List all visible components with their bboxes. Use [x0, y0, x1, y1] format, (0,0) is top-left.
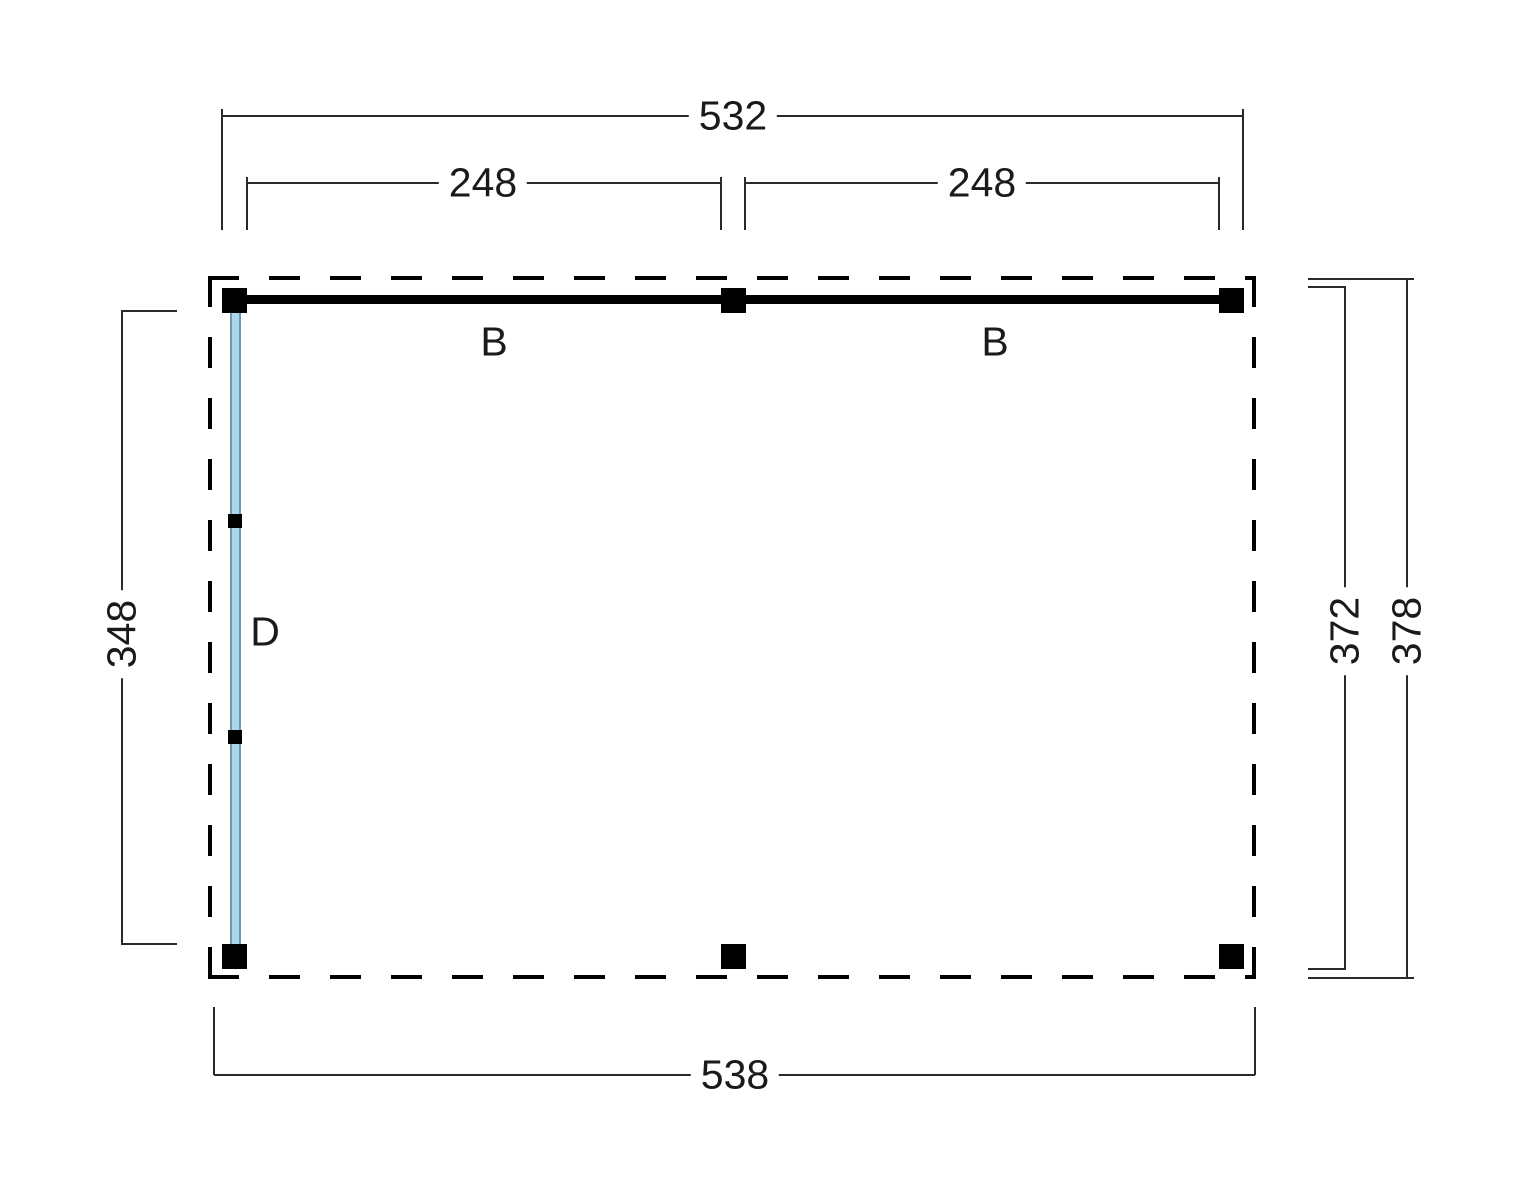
roof-outline-left — [208, 276, 212, 979]
dim-348-label: 348 — [102, 590, 143, 678]
dim-248b-ext-left — [744, 177, 746, 230]
post-bottom-left — [222, 944, 247, 969]
dim-532-label: 532 — [689, 96, 777, 137]
dim-538-ext-left — [213, 1007, 215, 1075]
dim-348-tick-bottom — [121, 943, 177, 945]
roof-outline-right — [1252, 276, 1256, 979]
dim-248a-label: 248 — [439, 163, 527, 204]
roof-outline-top — [208, 276, 1256, 280]
wall-d — [230, 313, 241, 945]
floorplan-canvas: 532 248 248 538 348 372 378 B B D — [0, 0, 1530, 1188]
wall-post-upper — [228, 514, 242, 528]
post-top-right — [1219, 288, 1244, 313]
dim-532-ext-left — [221, 109, 223, 230]
post-bottom-right — [1219, 944, 1244, 969]
dim-372-tick-top — [1308, 286, 1346, 288]
post-top-left — [222, 288, 247, 313]
roof-outline-bottom — [208, 975, 1256, 979]
wall-post-lower — [228, 730, 242, 744]
dim-372-tick-bottom — [1308, 968, 1346, 970]
dim-348-tick-top — [121, 310, 177, 312]
post-top-middle — [721, 288, 746, 313]
dim-378-tick-bottom — [1308, 977, 1414, 979]
dim-372-label: 372 — [1325, 587, 1366, 675]
dim-248b-label: 248 — [938, 163, 1026, 204]
beam-label-right: B — [981, 322, 1008, 363]
dim-532-ext-right — [1242, 109, 1244, 230]
dim-248b-ext-right — [1218, 177, 1220, 230]
beam-label-left: B — [480, 322, 507, 363]
wall-d-label: D — [250, 612, 280, 653]
dim-378-label: 378 — [1387, 587, 1428, 675]
dim-538-label: 538 — [691, 1055, 779, 1096]
dim-248a-ext-right — [720, 177, 722, 230]
dim-538-ext-right — [1254, 1007, 1256, 1075]
dim-378-tick-top — [1308, 278, 1414, 280]
dim-248a-ext-left — [246, 177, 248, 230]
post-bottom-middle — [721, 944, 746, 969]
